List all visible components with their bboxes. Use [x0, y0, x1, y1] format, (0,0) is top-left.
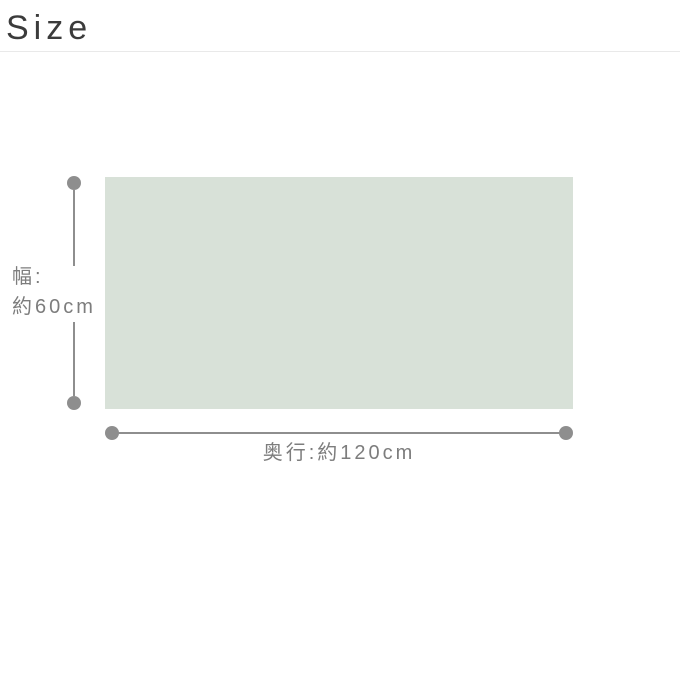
- page-title: Size: [6, 8, 92, 48]
- depth-dim-line: [112, 432, 566, 434]
- depth-dim-right-dot-icon: [559, 426, 573, 440]
- header-divider: [0, 51, 680, 52]
- width-dim-bottom-dot-icon: [67, 396, 81, 410]
- depth-dimension-label: 奥行:約120cm: [105, 441, 573, 465]
- width-dim-line-lower: [73, 322, 75, 396]
- size-diagram: Size 幅: 約60cm 奥行:約120cm: [0, 0, 680, 680]
- product-surface-rect: [105, 177, 573, 409]
- width-dimension-label: 幅: 約60cm: [12, 262, 96, 322]
- width-label-line2: 約60cm: [12, 292, 96, 322]
- width-label-line1: 幅:: [12, 262, 96, 292]
- width-dim-top-dot-icon: [67, 176, 81, 190]
- width-dim-line-upper: [73, 190, 75, 266]
